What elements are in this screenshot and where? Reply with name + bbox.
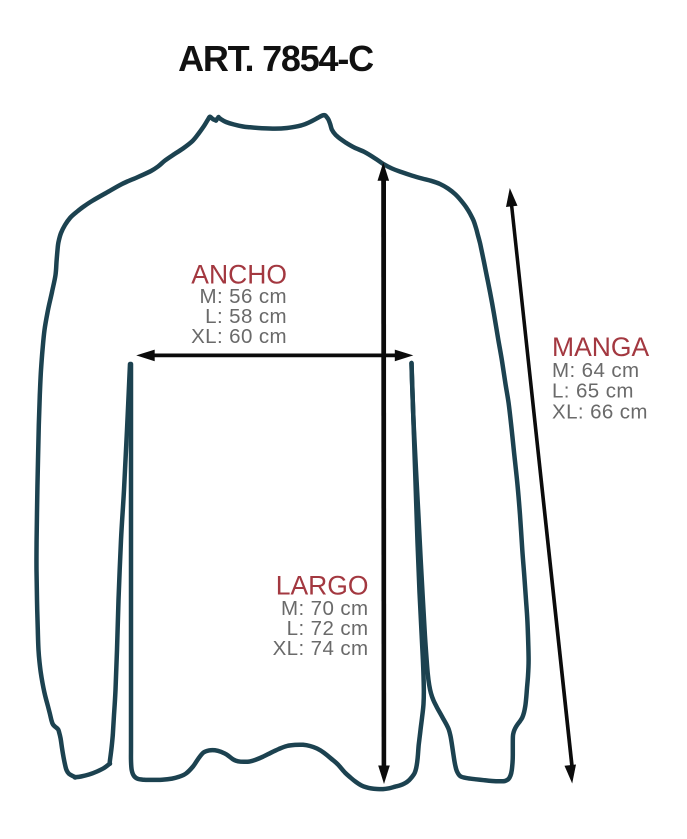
svg-text:XL: 60 cm: XL: 60 cm	[191, 325, 287, 348]
svg-text:L: 65 cm: L: 65 cm	[552, 380, 634, 403]
svg-text:XL: 66 cm: XL: 66 cm	[552, 400, 648, 423]
svg-text:ART. 7854-C: ART. 7854-C	[178, 38, 374, 79]
svg-text:MANGA: MANGA	[552, 332, 650, 362]
svg-text:XL: 74 cm: XL: 74 cm	[273, 637, 369, 660]
svg-text:M: 64 cm: M: 64 cm	[552, 359, 640, 382]
